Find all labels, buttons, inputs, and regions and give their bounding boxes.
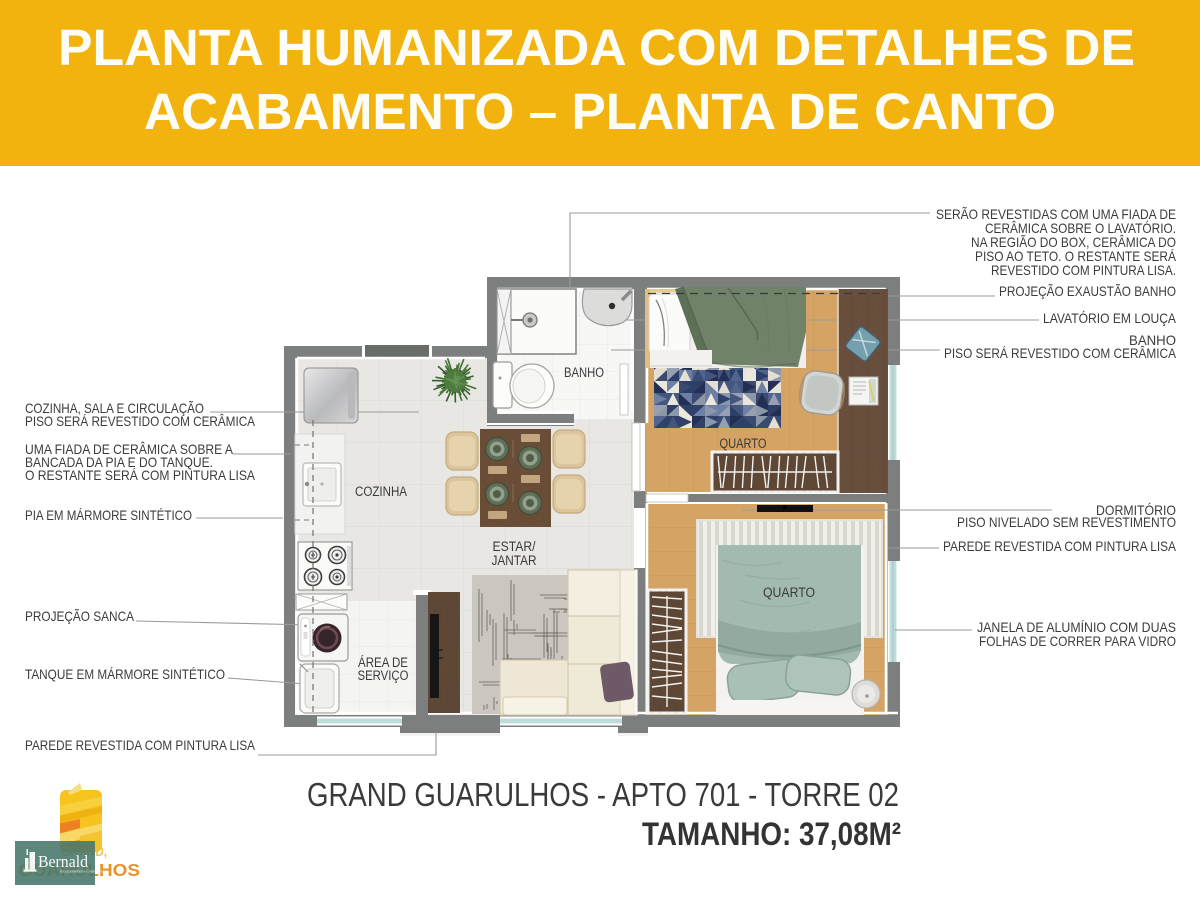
svg-text:TAMANHO: 37,08M²: TAMANHO: 37,08M² <box>642 816 901 852</box>
svg-text:QUARTO: QUARTO <box>720 436 767 451</box>
svg-text:PIA EM MÁRMORE SINTÉTICO: PIA EM MÁRMORE SINTÉTICO <box>25 507 192 523</box>
svg-text:PLANTA HUMANIZADA COM DETALHES: PLANTA HUMANIZADA COM DETALHES DE <box>58 19 1135 76</box>
svg-text:FOLHAS DE CORRER PARA VIDRO: FOLHAS DE CORRER PARA VIDRO <box>979 634 1176 649</box>
svg-text:PAREDE REVESTIDA COM PINTURA L: PAREDE REVESTIDA COM PINTURA LISA <box>25 738 256 753</box>
svg-text:SERÃO REVESTIDAS COM UMA FIADA: SERÃO REVESTIDAS COM UMA FIADA DE <box>936 206 1176 222</box>
svg-text:PISO SERÁ REVESTIDO COM CERÂMI: PISO SERÁ REVESTIDO COM CERÂMICA <box>25 413 256 429</box>
svg-text:ACABAMENTO – PLANTA DE CANTO: ACABAMENTO – PLANTA DE CANTO <box>144 83 1056 140</box>
svg-text:Incorporadora e Construtora: Incorporadora e Construtora <box>60 869 106 874</box>
svg-text:CERÂMICA SOBRE O LAVATÓRIO.: CERÂMICA SOBRE O LAVATÓRIO. <box>985 220 1176 236</box>
svg-text:SERVIÇO: SERVIÇO <box>358 668 409 683</box>
svg-text:O RESTANTE SERÁ COM PINTURA LI: O RESTANTE SERÁ COM PINTURA LISA <box>25 467 256 483</box>
svg-text:NA REGIÃO DO BOX, CERÂMICA DO: NA REGIÃO DO BOX, CERÂMICA DO <box>971 234 1176 250</box>
svg-text:BANHO: BANHO <box>564 365 604 380</box>
svg-text:COZINHA: COZINHA <box>355 484 407 499</box>
svg-text:PISO NIVELADO SEM REVESTIMENTO: PISO NIVELADO SEM REVESTIMENTO <box>957 515 1176 530</box>
svg-text:JANELA DE ALUMÍNIO COM DUAS: JANELA DE ALUMÍNIO COM DUAS <box>977 619 1176 635</box>
svg-text:ESTAR/: ESTAR/ <box>493 539 536 554</box>
svg-text:PISO SERÁ REVESTIDO COM CERÂMI: PISO SERÁ REVESTIDO COM CERÂMICA <box>944 345 1177 361</box>
svg-text:JANTAR: JANTAR <box>492 553 537 568</box>
svg-text:PROJEÇÃO SANCA: PROJEÇÃO SANCA <box>25 608 135 624</box>
svg-text:GRAND GUARULHOS - APTO 701 - T: GRAND GUARULHOS - APTO 701 - TORRE 02 <box>307 776 899 813</box>
svg-text:PAREDE REVESTIDA COM PINTURA L: PAREDE REVESTIDA COM PINTURA LISA <box>943 539 1177 554</box>
svg-text:LAVATÓRIO EM LOUÇA: LAVATÓRIO EM LOUÇA <box>1043 310 1177 326</box>
svg-text:PROJEÇÃO EXAUSTÃO BANHO: PROJEÇÃO EXAUSTÃO BANHO <box>999 283 1176 299</box>
svg-text:TANQUE EM MÁRMORE SINTÉTICO: TANQUE EM MÁRMORE SINTÉTICO <box>25 666 225 682</box>
svg-text:PISO AO TETO. O RESTANTE SERÁ: PISO AO TETO. O RESTANTE SERÁ <box>975 248 1177 264</box>
svg-text:REVESTIDO COM PINTURA LISA.: REVESTIDO COM PINTURA LISA. <box>991 263 1176 278</box>
svg-text:QUARTO: QUARTO <box>763 585 815 600</box>
